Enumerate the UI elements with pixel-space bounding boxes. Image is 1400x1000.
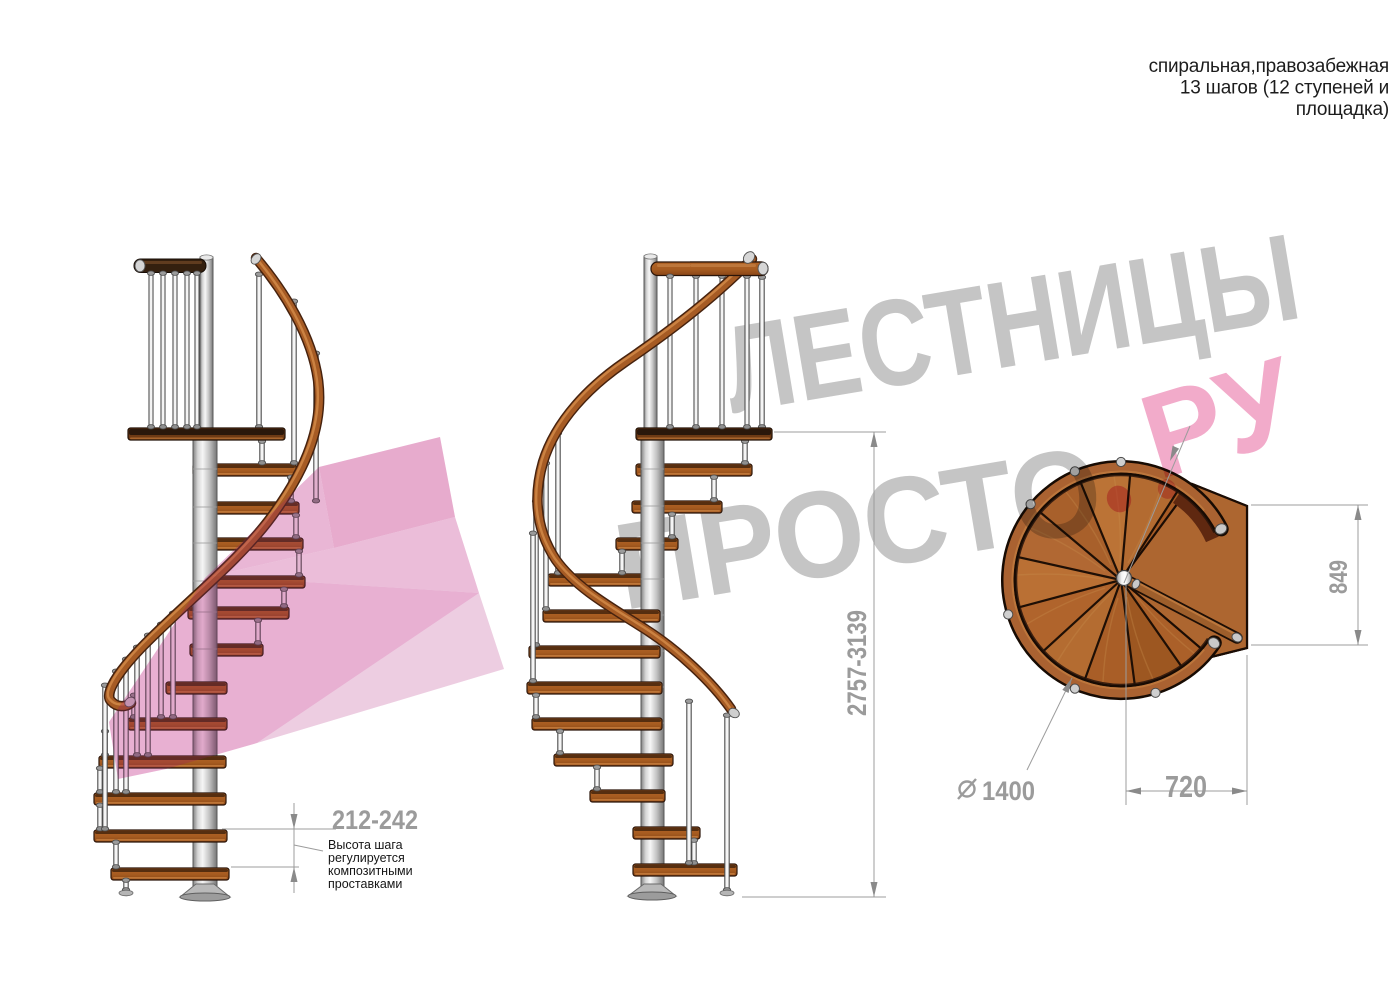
svg-text:Высота шага: Высота шага	[328, 838, 403, 852]
svg-text:13 шагов (12 ступеней и: 13 шагов (12 ступеней и	[1180, 78, 1389, 99]
svg-text:площадка): площадка)	[1296, 99, 1389, 120]
svg-text:2757-3139: 2757-3139	[842, 610, 872, 716]
svg-text:212-242: 212-242	[332, 805, 418, 835]
svg-text:1400: 1400	[982, 776, 1035, 806]
svg-text:спиральная,правозабежная: спиральная,правозабежная	[1149, 56, 1389, 77]
svg-text:849: 849	[1325, 560, 1353, 594]
svg-text:регулируется: регулируется	[328, 851, 405, 865]
svg-text:720: 720	[1165, 769, 1207, 804]
svg-text:композитными: композитными	[328, 864, 413, 878]
svg-text:проставками: проставками	[328, 877, 402, 891]
